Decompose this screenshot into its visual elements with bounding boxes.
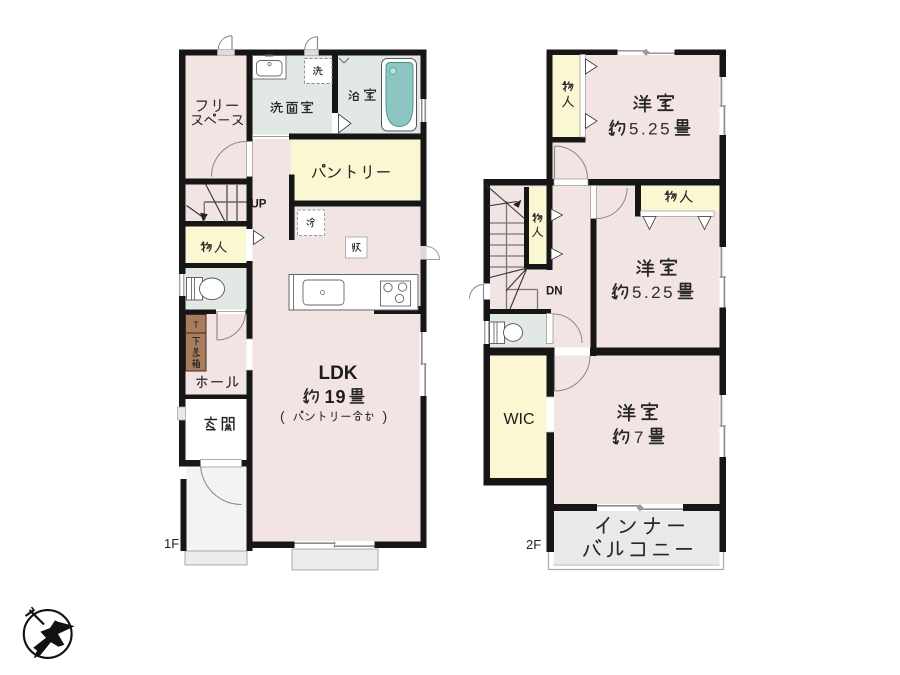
svg-text:19: 19 (325, 387, 347, 407)
svg-text:DN: DN (546, 286, 563, 298)
svg-text:(: ( (280, 408, 285, 424)
svg-text:5.25: 5.25 (629, 120, 672, 139)
svg-text:2F: 2F (526, 537, 541, 552)
svg-text:1F: 1F (164, 536, 179, 551)
svg-text:WIC: WIC (503, 411, 534, 428)
svg-text:T: T (193, 320, 199, 330)
svg-text:LDK: LDK (318, 363, 357, 384)
svg-text:UP: UP (251, 199, 267, 211)
svg-text:5.25: 5.25 (632, 283, 675, 302)
svg-text:): ) (383, 408, 388, 424)
svg-text:7: 7 (634, 428, 643, 447)
